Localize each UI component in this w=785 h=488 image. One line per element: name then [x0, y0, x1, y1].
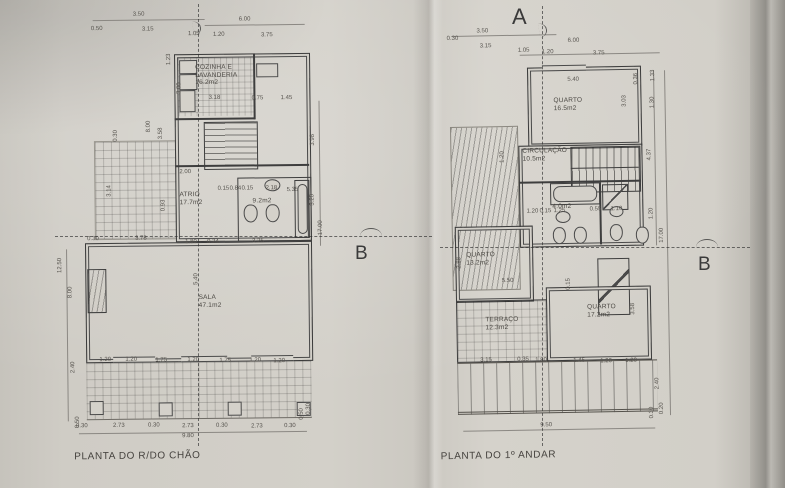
dimension-label: 5.50	[502, 278, 514, 284]
section-line-b-upper	[440, 247, 750, 248]
dimension-label: 3.58	[630, 303, 636, 315]
dimension-label: 1.10	[611, 206, 623, 212]
dimension-label: 1.05	[518, 48, 530, 54]
dimension-label: 3.75	[593, 50, 605, 56]
room-label: QUARTO16.5m2	[553, 97, 582, 113]
dimension-label: 3.50	[476, 28, 488, 34]
toilet-icon	[610, 224, 623, 241]
dimension-label: 0.55	[590, 206, 602, 212]
dimension-label: 1.45	[573, 358, 585, 364]
floor-plan-sheet-photo: 3.500.503.156.001.051.203.751.233.003.18…	[0, 0, 785, 488]
dimension-label: 5.40	[567, 77, 579, 83]
room-label: QUARTO13.2m2	[466, 251, 495, 267]
section-b-label-right: B	[698, 254, 711, 276]
dimension-label: 0.30	[649, 407, 655, 419]
toilet-icon	[553, 227, 566, 244]
dimension-label: 0.20	[659, 402, 665, 414]
dimension-label: 3.15	[480, 357, 492, 363]
dimension-label: 1.20	[499, 151, 505, 163]
dimension-label: 4.37	[646, 149, 652, 161]
balcony-railing	[457, 359, 658, 414]
dimension-label: 2.88	[456, 257, 462, 269]
room-label: TERRAÇO12.3m2	[485, 316, 518, 332]
dimension-label: 17.00	[659, 228, 665, 243]
room-label: CIRCULAÇÃO10.5m2	[522, 147, 567, 163]
section-b-label-left: B	[355, 243, 368, 265]
section-line-a-ground	[198, 4, 199, 446]
dimension-label: 0.35	[517, 357, 529, 363]
section-a-label: A	[512, 4, 527, 30]
section-line-a-upper	[542, 6, 543, 446]
dimension-label: 0.30	[447, 36, 459, 42]
upper-floor-title: PLANTA DO 1º ANDAR	[441, 449, 557, 462]
window	[542, 65, 586, 72]
dimension-label: 1.30	[649, 97, 655, 109]
dimension-line	[520, 52, 660, 55]
dimension-label: 1.20	[625, 358, 637, 364]
dimension-label: 1.20	[648, 208, 654, 220]
dimension-label: 1.20	[527, 208, 539, 214]
bedroom-17-walls	[546, 285, 652, 361]
dimension-label: 6.00	[568, 38, 580, 44]
dimension-line	[463, 427, 655, 431]
room-label: QUARTO17.2m2	[587, 303, 616, 319]
bathtub-inner	[553, 185, 597, 202]
dimension-label: 3.15	[480, 43, 492, 49]
bidet-icon	[636, 227, 649, 244]
dimension-line	[664, 70, 671, 415]
dimension-label: 1.33	[650, 70, 656, 82]
dimension-label: 3.03	[621, 95, 627, 107]
dimension-label: 0.36	[633, 73, 639, 85]
room-label: 4.0m2	[552, 203, 571, 211]
dimension-label: 0.15	[566, 278, 572, 290]
section-line-b-ground	[55, 236, 432, 237]
bidet-icon	[574, 227, 587, 244]
dimension-label: 1.20	[600, 358, 612, 364]
first-floor-plan: 3.500.303.156.001.051.203.755.400.361.33…	[0, 0, 785, 488]
dimension-label: 1.20	[542, 49, 554, 55]
dimension-label: 2.40	[654, 378, 660, 390]
